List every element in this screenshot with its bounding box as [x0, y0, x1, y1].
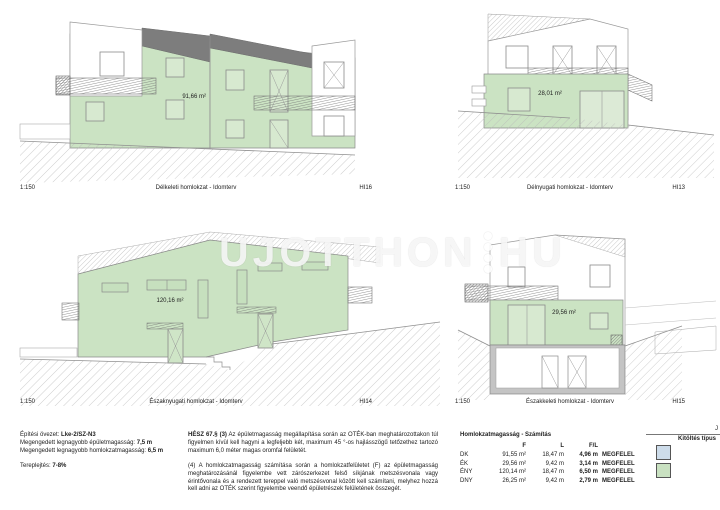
regulation-para1-lead: HÉSZ 67.§ (3) — [188, 432, 227, 438]
ribbon-window — [102, 283, 128, 292]
slope-label: Tereplejtés: — [20, 463, 51, 469]
balcony-railing-left — [56, 76, 156, 95]
status-badge: MEGFELEL — [602, 460, 646, 469]
retaining-wall — [20, 124, 70, 139]
area-label: 120,16 m² — [156, 298, 183, 304]
slope-value: 7-8% — [52, 463, 66, 469]
zoning-label: Építési övezet: — [20, 432, 59, 438]
elevation-southeast-drawing: 91,66 m² — [8, 6, 356, 186]
door — [270, 120, 288, 148]
caption-title: Délkeleti homlokzat - Idomterv — [20, 185, 372, 191]
window — [508, 88, 530, 111]
building-height-value: 7,5 m — [137, 440, 152, 446]
area-label: 29,56 m² — [552, 310, 576, 316]
col-l: L — [530, 442, 564, 451]
building-height-line: Megengedett legnagyobb épületmagasság: 7… — [20, 440, 178, 448]
window — [590, 313, 608, 329]
balcony-railing — [62, 303, 79, 320]
caption-row-northwest: 1:150 Északnyugati homlokzat - Idomterv … — [20, 399, 372, 405]
door — [168, 329, 183, 363]
caption-row-southeast: 1:150 Délkeleti homlokzat - Idomterv HI1… — [20, 185, 372, 191]
wall-tab — [472, 99, 486, 106]
facade-height-line: Megengedett legnagyobb homlokzatmagasság… — [20, 448, 178, 456]
zoning-value: Lke-2/SZ-N3 — [61, 432, 96, 438]
regulation-text: HÉSZ 67.§ (3) Az épületmagasság megállap… — [188, 432, 438, 501]
status-badge: MEGFELEL — [602, 468, 646, 477]
caption-row-northeast: 1:150 Északkeleti homlokzat - Idomterv H… — [455, 399, 685, 405]
caption-title: Délnyugati homlokzat - Idomterv — [455, 185, 685, 191]
area-label: 91,66 m² — [182, 94, 206, 100]
facade-height-label: Megengedett legnagyobb homlokzatmagasság… — [20, 448, 146, 454]
caption-title: Északnyugati homlokzat - Idomterv — [20, 399, 372, 405]
window — [508, 267, 525, 287]
building-height-label: Megengedett legnagyobb épületmagasság: — [20, 440, 135, 446]
table-header: F L F/L — [460, 442, 646, 451]
window — [86, 102, 104, 121]
basement — [490, 345, 625, 394]
elevation-northwest-drawing: 120,16 m² — [10, 230, 440, 408]
window — [226, 120, 244, 138]
door — [542, 356, 558, 388]
window — [506, 46, 528, 68]
balcony-railing-right — [254, 96, 355, 110]
wall-tab — [472, 86, 486, 93]
table-row: DNY 26,25 m² 9,42 m 2,79 m MEGFELEL — [460, 477, 646, 486]
regulation-para1: HÉSZ 67.§ (3) Az épületmagasság megállap… — [188, 432, 438, 456]
regulation-para2: (4) A homlokzatmagasság számítása során … — [188, 463, 438, 495]
status-badge: MEGFELEL — [602, 451, 646, 460]
window — [226, 70, 244, 90]
legend-divider — [646, 434, 720, 435]
col-fl: F/L — [568, 442, 598, 451]
caption-row-southwest: 1:150 Délnyugati homlokzat - Idomterv HI… — [455, 185, 685, 191]
table-row: DK 91,55 m² 18,47 m 4,96 m MEGFELEL — [460, 451, 646, 460]
door — [568, 356, 586, 388]
ground — [458, 111, 714, 178]
facade-height-value: 6,5 m — [148, 448, 163, 454]
balcony-railing — [348, 287, 372, 303]
legend-partial-text: J — [646, 426, 718, 432]
status-badge: MEGFELEL — [602, 477, 646, 486]
retaining-wall — [20, 348, 77, 357]
legend-swatch-green — [656, 463, 671, 478]
area-label: 28,01 m² — [538, 91, 562, 97]
door — [258, 314, 273, 348]
elevation-northeast-drawing: 29,56 m² — [450, 230, 718, 408]
table-row: ÉK 29,56 m² 9,42 m 3,14 m MEGFELEL — [460, 460, 646, 469]
window — [237, 270, 247, 304]
legend-title: Kitöltés típus — [646, 436, 716, 442]
window — [198, 280, 208, 318]
window — [100, 52, 124, 76]
facade-height-table: Homlokzatmagasság - Számítás F L F/L DK … — [460, 432, 646, 486]
window — [590, 265, 610, 287]
table-title: Homlokzatmagasság - Számítás — [460, 432, 646, 438]
slope-line: Tereplejtés: 7-8% — [20, 463, 178, 471]
legend-swatch-blue — [656, 445, 671, 460]
caption-title: Északkeleti homlokzat - Idomterv — [455, 399, 685, 405]
balcony-railing — [465, 284, 558, 302]
zoning-notes: Építési övezet: Lke-2/SZ-N3 Megengedett … — [20, 432, 178, 471]
fill-type-legend: J Kitöltés típus — [646, 426, 720, 481]
col-f: F — [488, 442, 526, 451]
vent — [611, 335, 622, 345]
drawing-sheet: 91,66 m² — [0, 0, 720, 510]
table-row: ÉNY 120,14 m² 18,47 m 6,50 m MEGFELEL — [460, 468, 646, 477]
lintel — [147, 323, 183, 329]
ribbon-window — [147, 280, 186, 290]
zoning-line: Építési övezet: Lke-2/SZ-N3 — [20, 432, 178, 440]
ribbon-window — [302, 262, 328, 270]
window — [166, 58, 184, 77]
sliding-door — [508, 305, 545, 345]
elevation-southwest-drawing: 28,01 m² — [450, 8, 718, 188]
lintel — [237, 307, 276, 313]
window — [166, 100, 184, 119]
lower-facade — [490, 300, 623, 345]
ribbon-window — [258, 263, 282, 271]
